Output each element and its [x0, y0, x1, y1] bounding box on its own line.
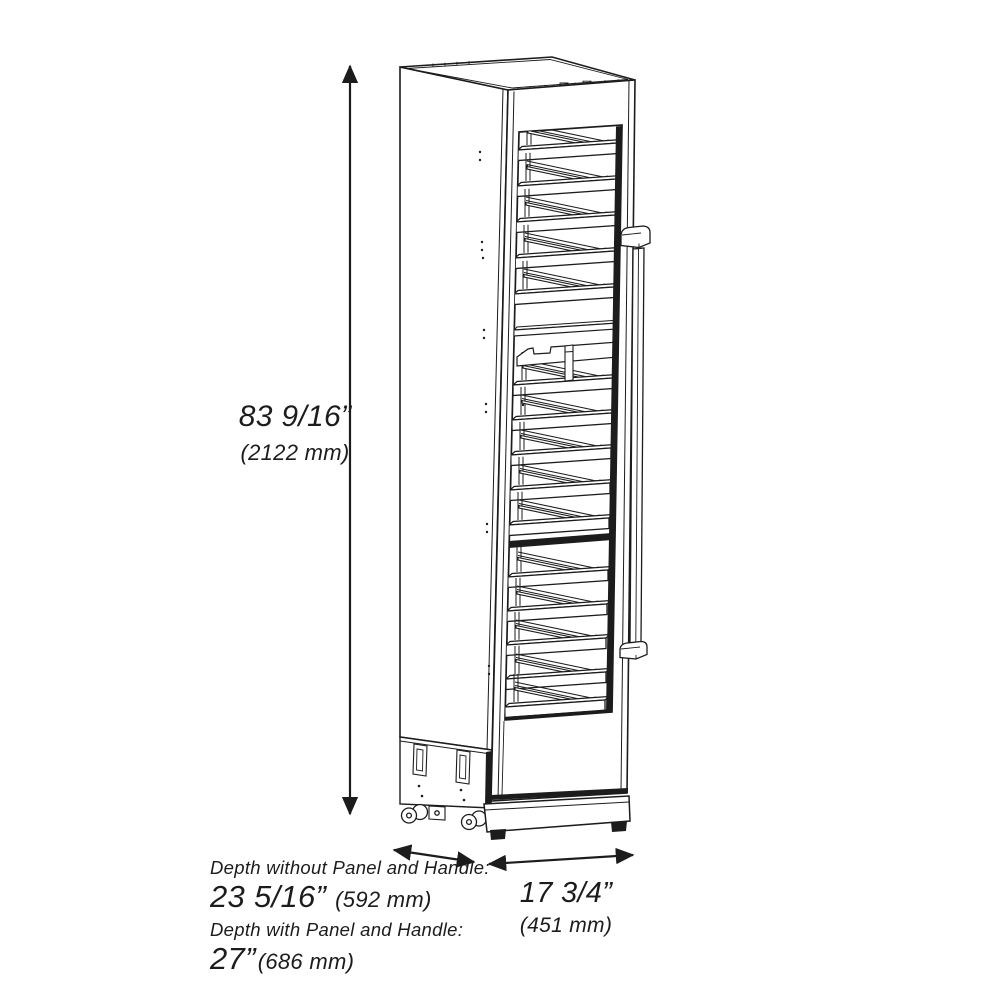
- height-dimension-label: 83 9/16” (2122 mm): [205, 400, 385, 465]
- depth-with-label: Depth with Panel and Handle:: [210, 919, 510, 941]
- width-imperial: 17 3/4”: [478, 876, 654, 910]
- depth-without-label: Depth without Panel and Handle:: [210, 857, 510, 879]
- depth-without-imperial: 23 5/16”: [210, 879, 326, 915]
- width-metric: (451 mm): [478, 913, 654, 939]
- wine-cooler-line-drawing: [0, 0, 1000, 1000]
- base-plinth: [484, 796, 630, 840]
- width-dimension-arrow: [489, 855, 633, 864]
- dimension-diagram: 83 9/16” (2122 mm) Depth without Panel a…: [0, 0, 1000, 1000]
- depth-without-value: 23 5/16” (592 mm): [210, 879, 510, 917]
- height-imperial: 83 9/16”: [205, 400, 385, 435]
- width-dimension-label: 17 3/4” (451 mm): [478, 876, 654, 939]
- depth-with-value: 27” (686 mm): [210, 941, 510, 979]
- depth-with-imperial: 27”: [210, 941, 256, 977]
- height-metric: (2122 mm): [205, 440, 385, 465]
- lower-compartment: [400, 737, 492, 808]
- side-panel: [400, 67, 508, 750]
- depth-without-metric: (592 mm): [335, 887, 432, 912]
- depth-with-metric: (686 mm): [258, 949, 355, 974]
- casters: [402, 805, 487, 830]
- depth-dimension-labels: Depth without Panel and Handle: 23 5/16”…: [210, 857, 510, 979]
